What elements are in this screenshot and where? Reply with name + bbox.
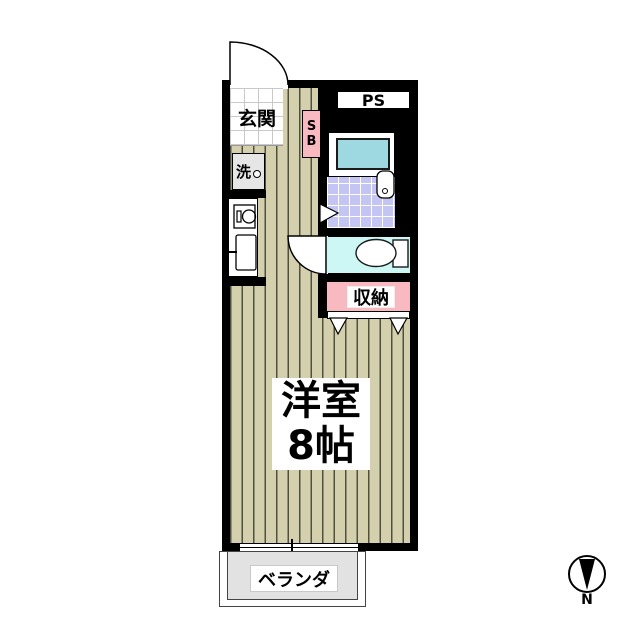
washing-machine-space: 洗 [232, 153, 265, 190]
entrance-door-icon [230, 42, 288, 85]
closet-door-track [327, 311, 410, 319]
kitchen-unit [228, 198, 258, 277]
north-arrow-circle-icon [569, 556, 605, 592]
pipe-space-label: PS [336, 90, 411, 110]
balcony-label: ベランダ [250, 565, 338, 592]
wall-stub-upper [222, 190, 266, 198]
bathtub-icon [336, 138, 390, 170]
wall-stub-lower [222, 277, 266, 286]
north-arrow-icon [579, 559, 595, 590]
shoe-box-letter-s: S [307, 119, 316, 134]
window-glass-line [240, 547, 358, 548]
main-room-size: 8帖 [287, 424, 355, 469]
entrance-room-label: 玄関 [232, 105, 282, 129]
main-room-label: 洋室 8帖 [272, 378, 370, 470]
north-label: N [577, 592, 597, 608]
shoe-box-letter-b: B [307, 134, 317, 149]
main-room-name: 洋室 [281, 379, 361, 424]
storage-label: 収納 [347, 286, 395, 308]
bathroom-tile-floor [327, 177, 395, 228]
floorplan-canvas: 玄関 PS S B 洗 収納 洋室 8帖 ベランダ N [0, 0, 640, 640]
washer-label: 洗 [236, 161, 251, 182]
toilet-room [327, 237, 410, 273]
shoe-box: S B [302, 110, 321, 158]
